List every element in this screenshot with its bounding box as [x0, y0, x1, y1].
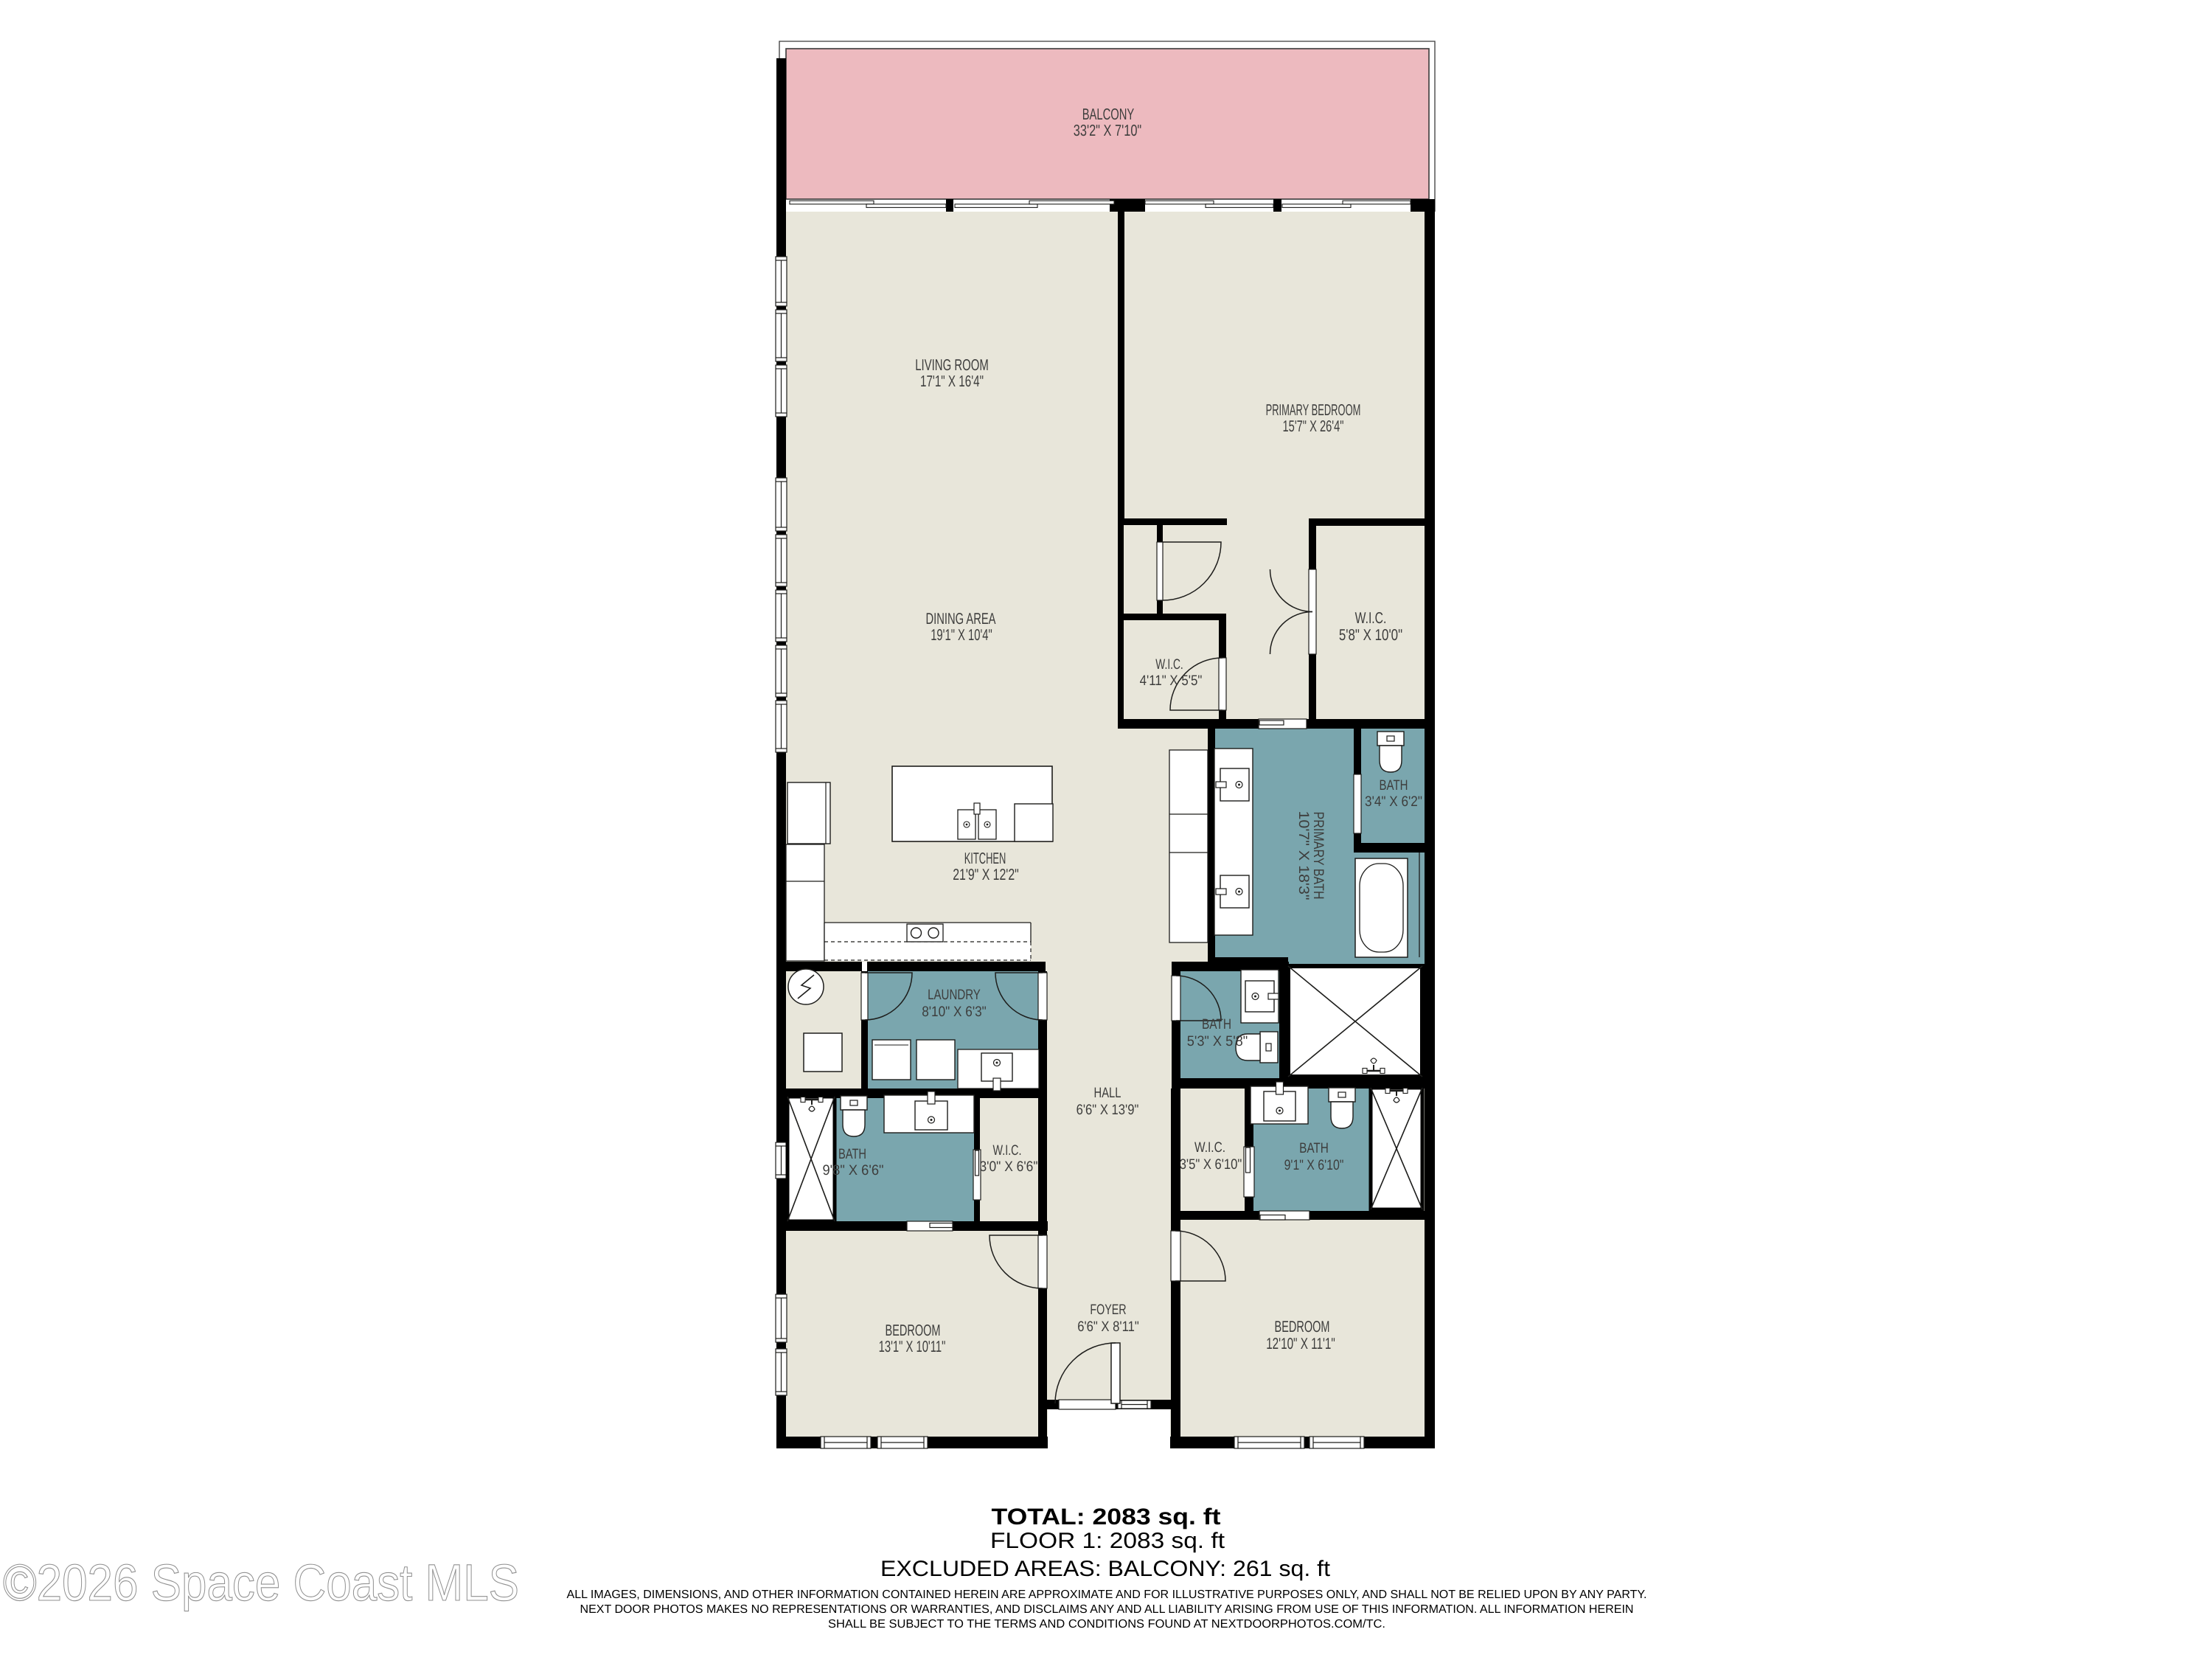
- svg-text:4'11" X 5'5": 4'11" X 5'5": [1140, 673, 1203, 689]
- svg-text:PRIMARY BEDROOM: PRIMARY BEDROOM: [1266, 401, 1361, 419]
- svg-text:13'1" X 10'11": 13'1" X 10'11": [879, 1338, 946, 1355]
- svg-text:9'8" X 6'6": 9'8" X 6'6": [823, 1162, 884, 1178]
- svg-text:EXCLUDED AREAS: BALCONY: 261 s: EXCLUDED AREAS: BALCONY: 261 sq. ft: [880, 1557, 1331, 1581]
- svg-text:W.I.C.: W.I.C.: [1194, 1139, 1225, 1156]
- svg-text:8'10" X 6'3": 8'10" X 6'3": [922, 1004, 987, 1020]
- svg-text:5'3" X 5'8": 5'3" X 5'8": [1187, 1033, 1248, 1049]
- svg-text:W.I.C.: W.I.C.: [1355, 609, 1387, 627]
- svg-text:TOTAL: 2083 sq. ft: TOTAL: 2083 sq. ft: [992, 1504, 1221, 1530]
- svg-text:W.I.C.: W.I.C.: [1155, 656, 1183, 673]
- svg-text:33'2" X 7'10": 33'2" X 7'10": [1074, 122, 1142, 139]
- svg-text:HALL: HALL: [1094, 1085, 1121, 1101]
- svg-text:KITCHEN: KITCHEN: [964, 850, 1006, 867]
- svg-text:21'9" X 12'2": 21'9" X 12'2": [953, 866, 1019, 883]
- svg-text:3'0" X 6'6": 3'0" X 6'6": [980, 1159, 1038, 1175]
- svg-text:6'6" X 8'11": 6'6" X 8'11": [1077, 1319, 1139, 1335]
- svg-text:BEDROOM: BEDROOM: [1275, 1318, 1330, 1336]
- svg-text:17'1" X 16'4": 17'1" X 16'4": [920, 372, 984, 390]
- svg-text:DINING AREA: DINING AREA: [926, 610, 996, 628]
- svg-text:BEDROOM: BEDROOM: [886, 1322, 941, 1339]
- svg-text:©2026 Space Coast MLS: ©2026 Space Coast MLS: [3, 1554, 519, 1611]
- svg-text:BATH: BATH: [1380, 777, 1408, 794]
- svg-text:BATH: BATH: [838, 1146, 866, 1162]
- svg-text:BATH: BATH: [1299, 1140, 1329, 1156]
- svg-text:ALL IMAGES, DIMENSIONS, AND OT: ALL IMAGES, DIMENSIONS, AND OTHER INFORM…: [567, 1589, 1647, 1601]
- svg-text:BATH: BATH: [1202, 1016, 1231, 1032]
- svg-text:9'1" X 6'10": 9'1" X 6'10": [1284, 1157, 1344, 1173]
- svg-text:W.I.C.: W.I.C.: [993, 1142, 1022, 1159]
- svg-text:3'4" X 6'2": 3'4" X 6'2": [1365, 794, 1422, 810]
- svg-text:LAUNDRY: LAUNDRY: [928, 987, 981, 1003]
- svg-text:10'7" X 18'3": 10'7" X 18'3": [1295, 811, 1312, 900]
- svg-text:FLOOR 1: 2083 sq. ft: FLOOR 1: 2083 sq. ft: [990, 1529, 1225, 1553]
- svg-text:PRIMARY BATH: PRIMARY BATH: [1310, 812, 1326, 900]
- svg-text:19'1" X 10'4": 19'1" X 10'4": [931, 626, 992, 644]
- svg-text:BALCONY: BALCONY: [1082, 105, 1135, 123]
- svg-text:LIVING ROOM: LIVING ROOM: [915, 356, 989, 374]
- svg-text:SHALL BE SUBJECT TO THE TERMS: SHALL BE SUBJECT TO THE TERMS AND CONDIT…: [828, 1618, 1385, 1631]
- svg-text:NEXT DOOR PHOTOS MAKES NO REPR: NEXT DOOR PHOTOS MAKES NO REPRESENTATION…: [580, 1603, 1634, 1616]
- svg-text:12'10" X 11'1": 12'10" X 11'1": [1266, 1335, 1335, 1353]
- svg-text:6'6" X 13'9": 6'6" X 13'9": [1077, 1102, 1139, 1118]
- svg-text:5'8" X 10'0": 5'8" X 10'0": [1339, 626, 1402, 644]
- svg-text:FOYER: FOYER: [1090, 1302, 1126, 1318]
- svg-text:15'7" X 26'4": 15'7" X 26'4": [1283, 417, 1344, 435]
- svg-text:3'5" X 6'10": 3'5" X 6'10": [1180, 1156, 1242, 1173]
